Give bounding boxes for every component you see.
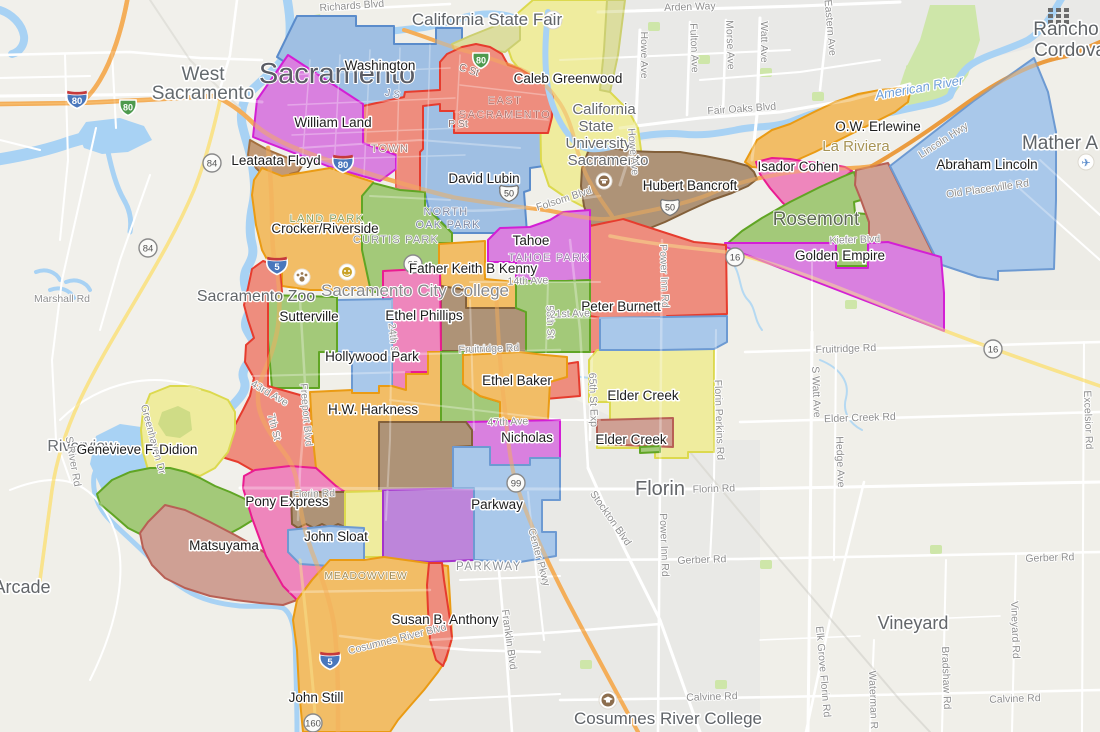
svg-text:Matsuyama: Matsuyama bbox=[189, 538, 259, 553]
svg-text:84: 84 bbox=[143, 244, 154, 255]
svg-text:Tahoe: Tahoe bbox=[513, 233, 550, 248]
svg-text:Rosemont: Rosemont bbox=[773, 209, 860, 230]
svg-text:Morse Ave: Morse Ave bbox=[723, 20, 737, 70]
svg-text:Fruitridge Rd: Fruitridge Rd bbox=[458, 342, 519, 356]
svg-text:Florin: Florin bbox=[635, 478, 685, 500]
svg-text:Nicholas: Nicholas bbox=[501, 430, 553, 445]
svg-text:Rancho: Rancho bbox=[1033, 19, 1099, 40]
svg-text:Bradshaw Rd: Bradshaw Rd bbox=[939, 646, 953, 710]
svg-text:Arden Way: Arden Way bbox=[664, 0, 717, 14]
svg-text:California State Fair: California State Fair bbox=[412, 10, 563, 29]
svg-text:50: 50 bbox=[665, 203, 675, 213]
svg-text:John Sloat: John Sloat bbox=[304, 529, 368, 544]
svg-text:50: 50 bbox=[504, 189, 514, 199]
svg-text:Sacramento City College: Sacramento City College bbox=[321, 281, 509, 300]
svg-text:TOWN: TOWN bbox=[371, 143, 409, 155]
svg-text:14th Ave: 14th Ave bbox=[507, 274, 548, 287]
svg-text:Fruitridge Rd: Fruitridge Rd bbox=[815, 342, 876, 356]
svg-text:99: 99 bbox=[511, 479, 522, 490]
svg-text:William Land: William Land bbox=[294, 115, 371, 130]
svg-text:✈: ✈ bbox=[1081, 158, 1090, 170]
svg-text:Leataata Floyd: Leataata Floyd bbox=[231, 153, 320, 168]
svg-text:80: 80 bbox=[476, 56, 486, 66]
svg-text:MEADOWVIEW: MEADOWVIEW bbox=[324, 570, 407, 582]
svg-text:80: 80 bbox=[338, 160, 349, 171]
svg-text:Father Keith B Kenny: Father Keith B Kenny bbox=[409, 261, 538, 276]
svg-text:H.W. Harkness: H.W. Harkness bbox=[328, 402, 418, 417]
svg-text:Sacramento: Sacramento bbox=[152, 83, 254, 104]
svg-text:Sutterville: Sutterville bbox=[279, 309, 338, 324]
svg-text:Howe Ave: Howe Ave bbox=[638, 31, 650, 78]
svg-text:Waterman R: Waterman R bbox=[866, 670, 880, 729]
svg-text:Power Inn Rd: Power Inn Rd bbox=[657, 513, 671, 577]
svg-text:O.W. Erlewine: O.W. Erlewine bbox=[835, 119, 921, 134]
svg-text:EAST: EAST bbox=[488, 95, 523, 107]
svg-text:Isador Cohen: Isador Cohen bbox=[757, 159, 838, 174]
svg-text:Ethel Phillips: Ethel Phillips bbox=[385, 308, 463, 323]
svg-text:Gerber Rd: Gerber Rd bbox=[677, 553, 727, 567]
svg-text:Crocker/Riverside: Crocker/Riverside bbox=[271, 221, 378, 236]
svg-text:Mather A: Mather A bbox=[1022, 133, 1098, 154]
svg-text:Genevieve F. Didion: Genevieve F. Didion bbox=[77, 442, 198, 457]
svg-text:16: 16 bbox=[730, 253, 741, 264]
svg-text:West: West bbox=[182, 64, 226, 85]
svg-text:Elder Creek: Elder Creek bbox=[595, 432, 667, 447]
svg-text:5: 5 bbox=[327, 657, 333, 668]
svg-text:OAK PARK: OAK PARK bbox=[415, 219, 480, 231]
svg-text:Cordova: Cordova bbox=[1034, 40, 1100, 61]
svg-text:P St: P St bbox=[448, 118, 468, 130]
svg-text:Abraham Lincoln: Abraham Lincoln bbox=[936, 157, 1037, 172]
svg-text:Elder Creek: Elder Creek bbox=[607, 388, 679, 403]
svg-text:John Still: John Still bbox=[289, 690, 344, 705]
svg-text:Kiefer Blvd: Kiefer Blvd bbox=[829, 233, 880, 247]
svg-text:84: 84 bbox=[207, 159, 218, 170]
svg-text:Calvine Rd: Calvine Rd bbox=[989, 692, 1041, 706]
svg-text:California: California bbox=[572, 101, 636, 118]
svg-text:Hedge Ave: Hedge Ave bbox=[833, 436, 847, 488]
svg-text:Ethel Baker: Ethel Baker bbox=[482, 373, 552, 388]
svg-text:Gerber Rd: Gerber Rd bbox=[1025, 551, 1075, 565]
svg-text:Vineyard Rd: Vineyard Rd bbox=[1008, 601, 1022, 659]
svg-text:47th Ave: 47th Ave bbox=[487, 415, 528, 428]
svg-text:Parkway: Parkway bbox=[471, 497, 523, 512]
svg-text:Golden Empire: Golden Empire bbox=[795, 248, 885, 263]
svg-text:Calvine Rd: Calvine Rd bbox=[686, 690, 738, 704]
svg-text:Hubert Bancroft: Hubert Bancroft bbox=[643, 178, 738, 193]
svg-text:David Lubin: David Lubin bbox=[448, 171, 519, 186]
svg-text:5: 5 bbox=[274, 262, 280, 273]
svg-text:NORTH: NORTH bbox=[424, 206, 469, 218]
svg-text:80: 80 bbox=[123, 103, 133, 113]
svg-text:Watt Ave: Watt Ave bbox=[758, 21, 770, 63]
svg-text:SACRAMENTO: SACRAMENTO bbox=[459, 109, 551, 121]
svg-text:Peter Burnett: Peter Burnett bbox=[581, 299, 661, 314]
svg-text:PARKWAY: PARKWAY bbox=[456, 561, 522, 573]
svg-text:Washington: Washington bbox=[345, 58, 416, 73]
svg-text:160: 160 bbox=[305, 719, 321, 730]
svg-text:Caleb Greenwood: Caleb Greenwood bbox=[514, 71, 623, 86]
svg-text:Sacramento Zoo: Sacramento Zoo bbox=[197, 288, 315, 305]
svg-text:Hollywood Park: Hollywood Park bbox=[325, 349, 419, 364]
svg-text:80: 80 bbox=[72, 96, 83, 107]
svg-text:University,: University, bbox=[566, 135, 635, 152]
svg-text:Florin Rd: Florin Rd bbox=[692, 482, 735, 495]
svg-text:16: 16 bbox=[988, 345, 999, 356]
svg-text:La Riviera: La Riviera bbox=[822, 138, 890, 155]
svg-text:65th St Exp: 65th St Exp bbox=[586, 373, 600, 428]
svg-text:State: State bbox=[578, 118, 613, 135]
svg-text:Vineyard: Vineyard bbox=[878, 613, 949, 633]
svg-text:Marshall Rd: Marshall Rd bbox=[34, 293, 90, 305]
svg-text:Excelsior Rd: Excelsior Rd bbox=[1081, 390, 1095, 449]
svg-text:Cosumnes River College: Cosumnes River College bbox=[574, 709, 762, 728]
svg-text:S Watt Ave: S Watt Ave bbox=[809, 366, 823, 418]
svg-text:Fulton Ave: Fulton Ave bbox=[687, 23, 701, 73]
svg-text:Susan B. Anthony: Susan B. Anthony bbox=[391, 612, 499, 627]
svg-text:Arcade: Arcade bbox=[0, 577, 51, 597]
svg-text:Elder Creek Rd: Elder Creek Rd bbox=[824, 411, 896, 426]
svg-text:Pony Express: Pony Express bbox=[245, 494, 329, 509]
